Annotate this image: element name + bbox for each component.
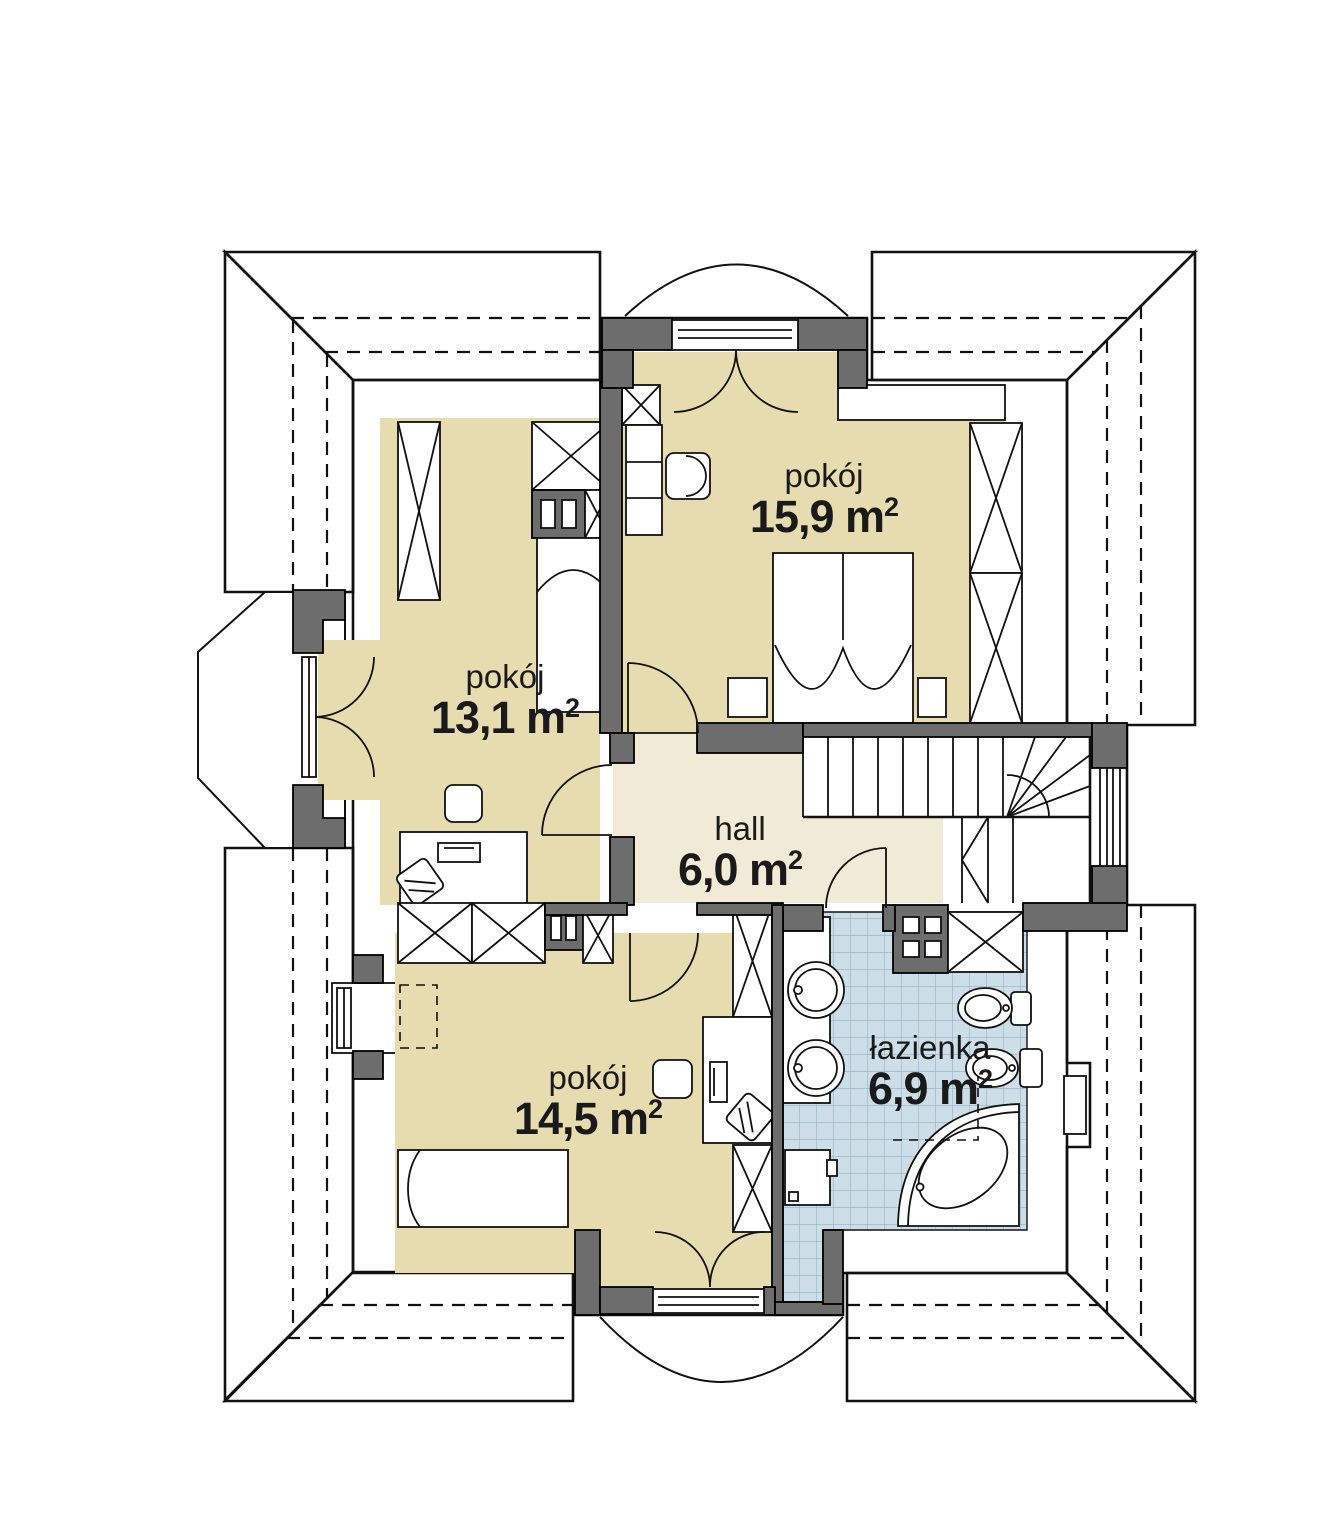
wall-hall-left-lower xyxy=(610,837,634,905)
roof-plane-top-right xyxy=(872,252,1195,380)
room-label-14-5: pokój 14,5 m2 xyxy=(514,1061,662,1143)
room-area: 6,9 m2 xyxy=(868,1065,992,1113)
wall-stairs-top xyxy=(803,723,1092,737)
wall-hall-left-upper xyxy=(610,733,634,763)
sink-icon xyxy=(788,962,844,1018)
wall-bay-stub-bottom xyxy=(353,1051,383,1079)
room-label-bathroom: łazienka 6,9 m2 xyxy=(868,1031,992,1113)
balcony-top xyxy=(625,265,848,317)
chimney-icon xyxy=(532,490,585,538)
wall-hall-top xyxy=(697,723,803,753)
washbasin-icon xyxy=(666,453,710,499)
wall-dormer-bottom-left-v xyxy=(575,1230,600,1315)
room-name: pokój xyxy=(431,660,579,694)
wall-dormer-bottom-right-v xyxy=(823,1230,843,1304)
room-name: pokój xyxy=(750,459,898,493)
floor-plan-drawing xyxy=(0,0,1334,1537)
nightstand-icon xyxy=(728,678,767,717)
room-label-hall: hall 6,0 m2 xyxy=(678,812,802,894)
room-name: hall xyxy=(678,812,802,846)
monitor-icon xyxy=(438,843,480,862)
roof-plane-left-upper xyxy=(225,252,353,592)
cabinet-icon xyxy=(626,425,662,535)
window-bathroom-bay xyxy=(1064,1076,1086,1134)
wardrobe-icon xyxy=(733,1145,772,1232)
room-13-1-floor-balcony-niche xyxy=(318,640,380,800)
room-label-13-1: pokój 13,1 m2 xyxy=(431,660,579,742)
roof-plane-right-lower xyxy=(1067,905,1195,1401)
wall-room-bath-divider xyxy=(772,905,783,1315)
room-label-15-9: pokój 15,9 m2 xyxy=(750,459,898,541)
balcony-bottom xyxy=(600,1317,843,1382)
roof-plane-top-left xyxy=(225,252,600,380)
wall-below-stairs xyxy=(1023,903,1127,931)
wall-rooms-divider xyxy=(600,382,622,733)
wall-rooms-13-14-right xyxy=(697,903,783,915)
monitor-icon xyxy=(710,1062,727,1102)
wall-stair-bay-bottom xyxy=(1092,866,1127,905)
wardrobe-icon xyxy=(472,903,545,963)
room-area: 14,5 m2 xyxy=(514,1095,662,1143)
washing-machine-icon xyxy=(785,1150,837,1205)
window-bay-room-14-5 xyxy=(332,983,398,1053)
wall-dormer-top-left-v xyxy=(602,350,633,388)
room-area: 15,9 m2 xyxy=(750,493,898,541)
chimney-icon xyxy=(893,905,948,973)
roof-plane-left-lower xyxy=(225,848,353,1400)
room-area: 6,0 m2 xyxy=(678,846,802,894)
wardrobe-icon xyxy=(970,423,1022,573)
roof-plane-bottom-left xyxy=(225,1272,573,1401)
nightstand-icon xyxy=(918,678,946,717)
cabinet-icon xyxy=(838,385,1005,420)
wall-dormer-top-left-h xyxy=(602,318,672,350)
floor-plan: pokój 15,9 m2 pokój 13,1 m2 hall 6,0 m2 … xyxy=(0,0,1334,1537)
toilet-icon xyxy=(958,988,1031,1028)
wall-bay-stub-top xyxy=(353,955,383,983)
wall-rooms-13-14-left xyxy=(545,903,627,915)
sink-icon xyxy=(788,1040,844,1096)
wall-dormer-top-right-v xyxy=(838,350,867,388)
roof-plane-right-upper xyxy=(1067,252,1195,725)
single-bed-icon xyxy=(398,1150,568,1227)
wall-hall-bath-left xyxy=(783,905,823,931)
wardrobe-icon xyxy=(398,903,472,963)
room-name: pokój xyxy=(514,1061,662,1095)
wall-stair-bay-top xyxy=(1092,723,1127,768)
wardrobe-icon xyxy=(532,422,610,490)
wall-dormer-bottom-mid xyxy=(764,1287,775,1315)
wardrobe-icon xyxy=(733,905,772,1017)
wardrobe-icon xyxy=(398,422,440,600)
wardrobe-icon xyxy=(970,573,1022,723)
wall-hall-bath-right xyxy=(883,905,895,931)
wardrobe-icon xyxy=(622,385,660,425)
wall-dormer-top-right-h xyxy=(798,318,867,350)
wardrobe-icon xyxy=(948,912,1023,972)
window-stair-bay xyxy=(1100,768,1120,866)
wall-dormer-bottom-left-h xyxy=(600,1287,653,1314)
wardrobe-icon xyxy=(583,908,613,963)
room-name: łazienka xyxy=(868,1031,992,1065)
double-bed-icon xyxy=(773,553,913,723)
room-area: 13,1 m2 xyxy=(431,694,579,742)
stair-direction-arc xyxy=(1007,775,1049,817)
pouf-icon xyxy=(445,785,482,822)
stair-winders-lower xyxy=(962,817,1013,903)
